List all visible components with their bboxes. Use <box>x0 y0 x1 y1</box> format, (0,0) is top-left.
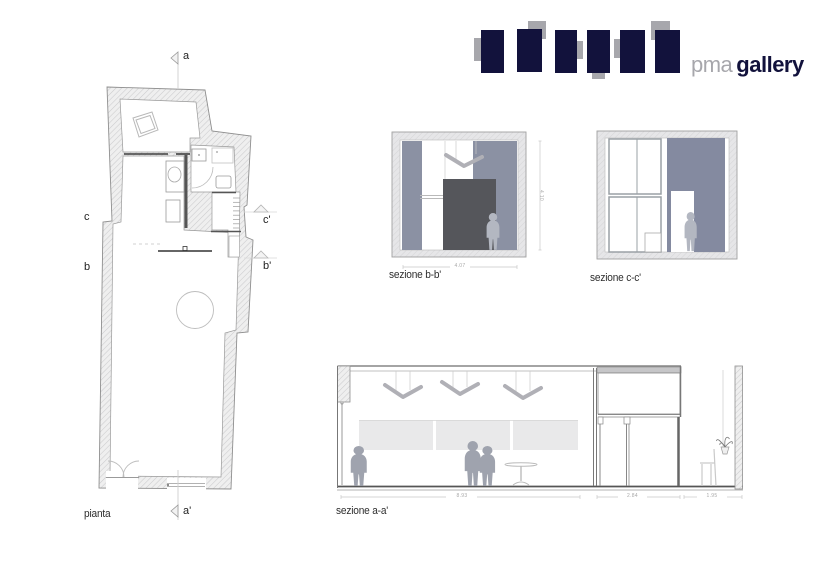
floor-plan <box>99 52 277 520</box>
section-aa-drawing <box>337 366 743 499</box>
brand-wordmark: pmagallery <box>691 52 804 78</box>
brand-gallery: gallery <box>736 52 803 77</box>
dim-bb-height: 4.10 <box>538 190 543 201</box>
entrance-threshold <box>167 478 206 490</box>
tulip-table <box>505 463 537 485</box>
dimension-lines-aa <box>341 495 742 499</box>
section-bb-title: sezione b-b' <box>389 269 441 281</box>
section-aa-title: sezione a-a' <box>336 505 388 517</box>
plan-title: pianta <box>84 508 110 520</box>
bathroom-wall <box>185 155 188 228</box>
section-cc-title: sezione c-c' <box>590 272 641 284</box>
right-wall <box>735 366 743 489</box>
dim-aa-1: 8.93 <box>448 494 476 499</box>
person-silhouette <box>351 446 367 486</box>
exhibition-volume <box>443 179 496 250</box>
dim-bb-width: 4.07 <box>448 264 472 269</box>
wall-niche <box>229 236 240 257</box>
chair <box>700 449 716 486</box>
section-c-marker <box>244 205 277 212</box>
dim-aa-2: 2.84 <box>619 494 646 499</box>
plant <box>717 437 733 454</box>
section-cc-drawing <box>597 131 737 259</box>
brand-pma: pma <box>691 52 732 77</box>
marker-b-prime: b' <box>263 260 271 272</box>
dim-aa-3: 1.95 <box>698 494 726 499</box>
architectural-drawing <box>0 0 820 580</box>
person-silhouette <box>480 446 495 486</box>
section-bb-drawing <box>392 132 542 269</box>
back-partition <box>594 366 682 486</box>
pma-gallery-logo-icon <box>474 21 680 79</box>
marker-c: c <box>84 211 90 223</box>
door-opening <box>106 471 138 489</box>
pma-gallery-drawing-sheet: pmagallery a a' c b c' b' pianta sezione… <box>0 0 820 580</box>
marker-c-prime: c' <box>263 214 271 226</box>
marker-a-prime: a' <box>183 505 191 517</box>
marker-b: b <box>84 261 90 273</box>
pendant-lamp-icon <box>385 371 541 398</box>
marker-a: a <box>183 50 189 62</box>
